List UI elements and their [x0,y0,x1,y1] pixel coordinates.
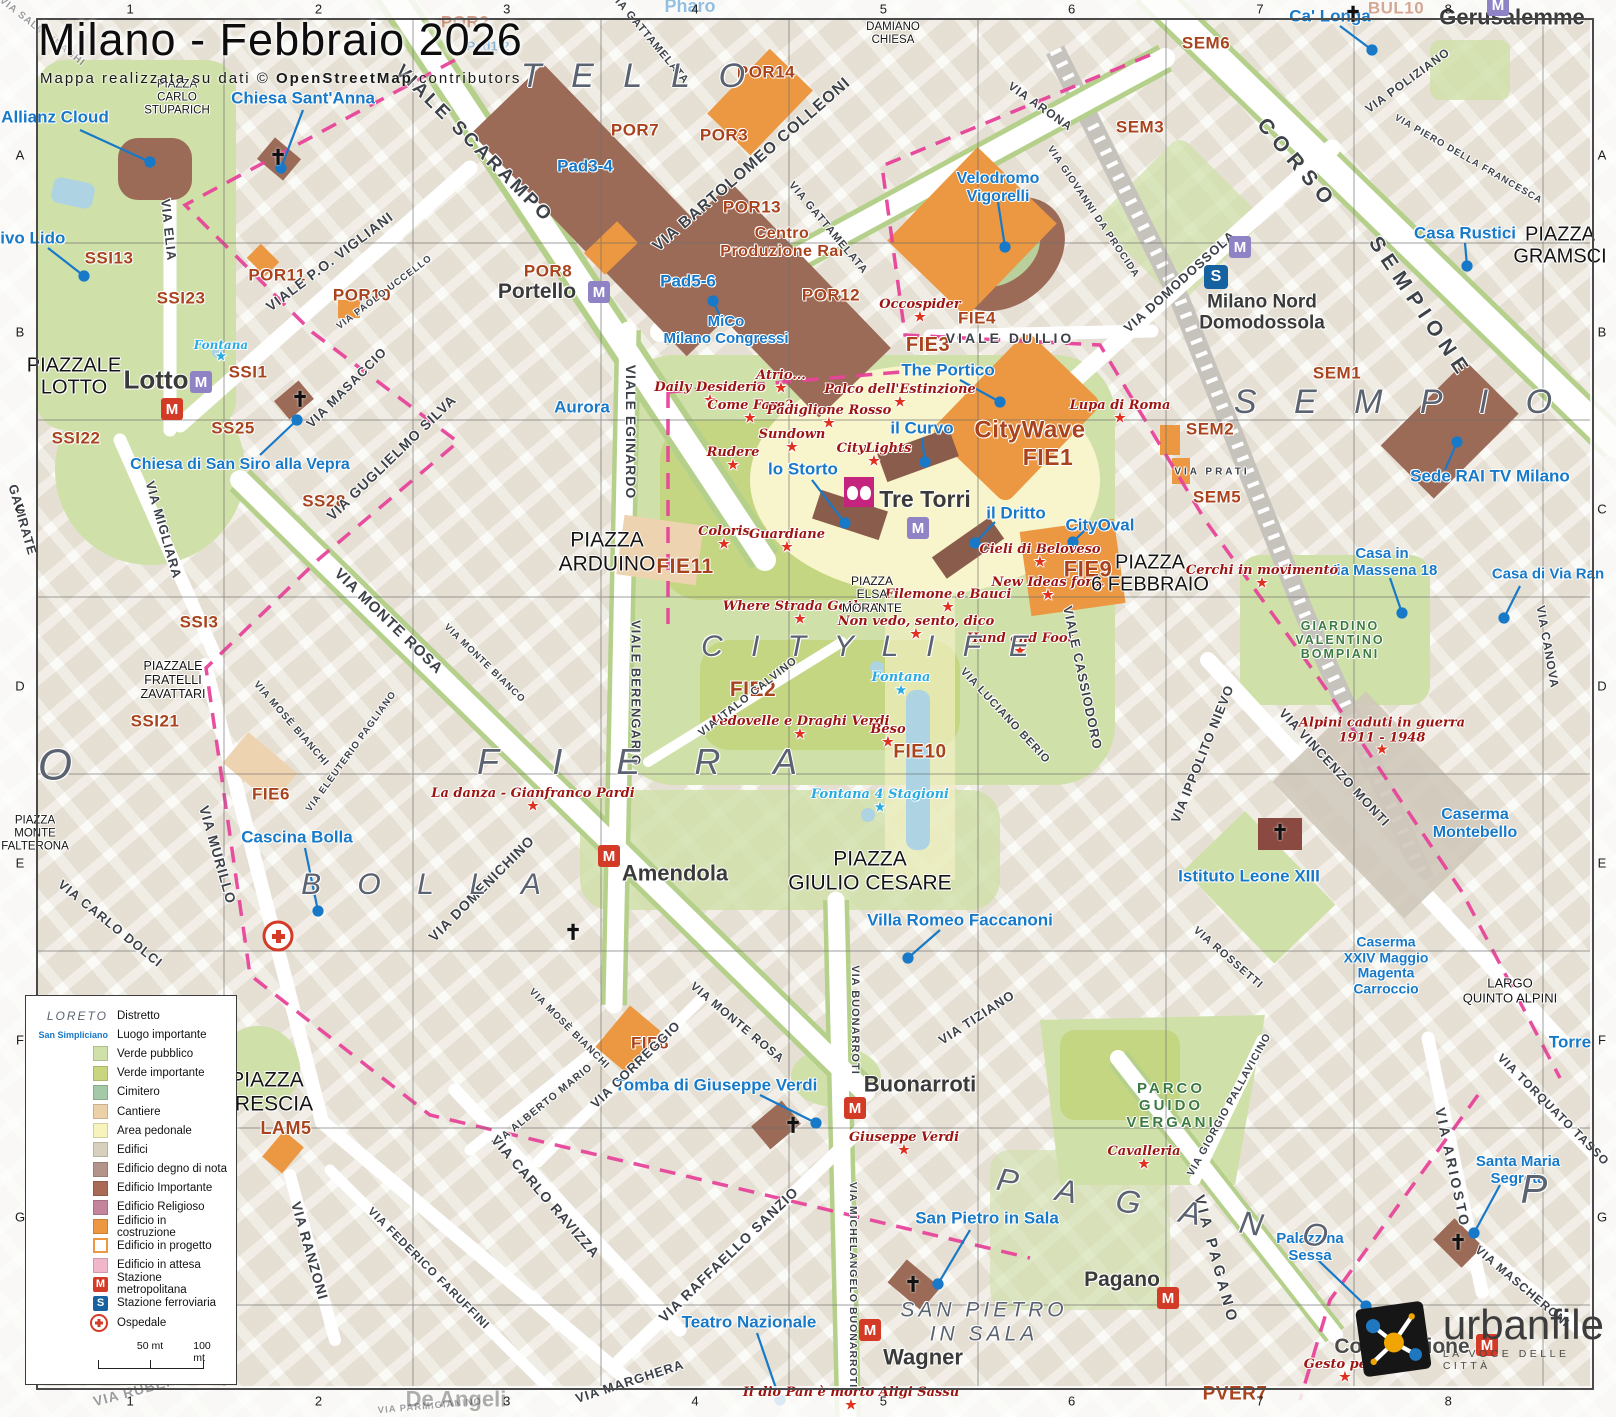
urbanfile-brand: urbanfile [1443,1306,1604,1344]
legend-key [36,1123,108,1138]
legend-swatch [93,1104,108,1119]
place-label: Chiesa di San Siro alla Vepra [130,456,350,474]
poi-label: Guardiane [749,528,825,552]
metro-station-marker: M [844,1097,866,1119]
project-code-label: FIE11 [656,555,713,579]
place-label: Caserma XXIV Maggio Magenta Carroccio [1344,935,1429,998]
poi-label: Cieli di Beloveso [979,543,1100,567]
project-code-label: FIE4 [958,308,996,327]
attribution-brand: OpenStreetMap [276,70,413,87]
project-code-label: FIE6 [252,784,290,803]
street-label: GAVIRATE [5,483,39,557]
legend-row: LORETODistretto [36,1006,228,1025]
street-label: VIALE EGINARDO [622,365,638,500]
station-label: Portello [498,280,576,304]
poi-label: Coloris [698,525,750,549]
station-label: Tre Torri [879,487,971,513]
street-label: VIA RAFFAELLO SANZIO [656,1184,802,1326]
legend-key: S [36,1296,108,1311]
legend-label: Edificio in attesa [117,1259,201,1271]
legend-swatch [93,1181,108,1196]
rail-station-icon: S [93,1296,108,1311]
church-icon: ✝ [1344,3,1362,28]
project-code-label: POR13 [723,197,781,216]
legend-swatch [93,1162,108,1177]
legend-label: Area pedonale [117,1125,192,1137]
attribution-prefix: Mappa realizzata su dati © [40,70,276,87]
metro-station-marker: M [1157,1287,1179,1309]
legend-row: Cimitero [36,1083,228,1102]
project-code-label: POR12 [802,285,860,304]
poi-label: Occospider [879,298,960,322]
place-label: Chiesa Sant'Anna [231,88,375,107]
legend-row: Area pedonale [36,1121,228,1140]
street-label: VIA CARLO RAVIZZA [488,1133,603,1262]
park-label: GIARDINO VALENTINO BOMPIANI [1295,619,1384,661]
legend-key [36,1258,108,1273]
legend-key [36,1200,108,1215]
park-label: PARCO GUIDO VERGANI [1126,1081,1215,1131]
legend-swatch [93,1238,108,1253]
station-label: Wagner [883,1346,963,1371]
legend-key [36,1219,108,1234]
legend-swatch [93,1200,108,1215]
place-label: Pharo [664,0,715,16]
station-label: Lotto [124,365,189,394]
street-label: VIA TORQUATO TASSO [1495,1052,1612,1169]
legend-label: Edificio Religioso [117,1201,205,1213]
legend-label: Stazione ferroviaria [117,1297,216,1309]
legend-key [36,1046,108,1061]
project-code-label: POR7 [611,120,659,139]
station-label: Milano Nord Domodossola [1199,292,1325,335]
scale-label-50: 50 mt [137,1340,163,1352]
scale-tick [150,1360,151,1368]
project-code-label: SEM1 [1313,363,1361,382]
place-label: Caserma Montebello [1433,806,1517,842]
poi-label: Il dio Pan è morto Aligi Sassu [743,1386,959,1410]
place-label: Teatro Nazionale [682,1312,817,1331]
district-label: F I E R A [477,742,819,782]
station-label: De Angeli [406,1388,507,1413]
legend-label: Luogo importante [117,1029,207,1041]
legend-label: Edificio Importante [117,1182,212,1194]
place-label: Casa Rustici [1414,223,1516,242]
place-label: il Curvo [890,418,953,437]
metro-m5-station-marker: M [588,281,610,303]
street-label: VIA CARLO DOLCI [55,877,165,970]
project-code-label: SSI1 [229,362,268,381]
urbanfile-logo: urbanfile LA VOCE DELLE CITTÀ [1358,1302,1616,1376]
place-label: Casa di Via Ran [1492,567,1604,584]
place-label: Casa in Via Massena 18 [1327,546,1438,580]
street-label: VIA BUONARROTI [849,965,861,1075]
metro-station-marker: M [598,845,620,867]
legend-row: Verde pubblico [36,1044,228,1063]
place-label: tivo Lido [0,228,65,247]
hospital-icon [263,921,294,952]
poi-label: Padiglione Rosso [767,404,892,428]
legend-row: Cantiere [36,1102,228,1121]
street-label: VIA GIOVANNI DA PROCIDA [1045,144,1142,280]
station-label: Buonarroti [864,1073,976,1098]
scale-bar: 50 mt 100 mt [98,1340,208,1374]
legend-label: Cantiere [117,1106,160,1118]
street-label: VIA MASACCIO [304,345,390,431]
place-label: MiCo Milano Congressi [663,314,788,348]
street-label: VIA ALBERTO MARIO [491,1062,596,1150]
fountain-label: Fontana [194,339,248,361]
project-code-label: SSI3 [180,612,219,631]
poi-label: Atrio... [756,369,806,393]
legend-swatch [93,1123,108,1138]
legend-key [36,1238,108,1253]
legend-place-sample: San Simpliciano [38,1030,108,1040]
poi-label: Lupa di Roma [1070,399,1171,423]
station-label: Gerusalemme [1439,6,1585,31]
project-code-label: SSI22 [52,428,101,447]
place-label: Villa Romeo Faccanoni [867,910,1053,929]
place-label: The Portico [901,360,995,379]
district-label: C I T Y L I F E [701,630,1039,664]
project-code-label: POR8 [524,261,572,280]
legend-label: Ospedale [117,1317,166,1329]
church-icon: ✝ [269,146,287,171]
legend-swatch [93,1258,108,1273]
poi-label: Sundown [759,428,826,452]
church-icon: ✝ [291,388,309,413]
street-label: VIA ROSSETTI [1191,924,1265,991]
fountain-label: Fontana 4 Stagioni [811,788,949,812]
legend-swatch [93,1219,108,1234]
project-code-label: SEM5 [1193,487,1241,506]
rail-station-marker: S [1204,265,1228,289]
project-code-label: SEM6 [1182,33,1230,52]
project-code-label: SEM2 [1186,419,1234,438]
legend-row: MStazione metropolitana [36,1275,228,1294]
district-label: O [38,740,72,789]
project-code-label: FIE3 [906,334,950,356]
poi-label: Cavalleria [1107,1145,1180,1169]
legend-label: Edifici [117,1144,148,1156]
district-label: P [1521,1168,1548,1213]
church-icon: ✝ [1271,821,1289,846]
map-attribution: Mappa realizzata su dati © OpenStreetMap… [40,70,523,87]
street-label: VIA LUCIANO BERIO [958,666,1053,767]
street-label: VIA ELIA [158,198,179,262]
legend-swatch [93,1046,108,1061]
square-label: PIAZZA GRAMSCI [1513,224,1606,269]
legend-key [36,1162,108,1177]
legend-label: Cimitero [117,1086,160,1098]
attribution-suffix: contributors [413,70,522,87]
metro-m5-station-marker: M [907,517,929,539]
map-labels: Allianz CloudChiesa Sant'Annativo LidoPa… [0,0,1616,1417]
church-icon: ✝ [904,1273,922,1298]
square-label: PIAZZA ARDUINO [559,528,656,575]
legend-row: Edificio degno di nota [36,1160,228,1179]
church-icon: ✝ [784,1114,802,1139]
poi-label: Giuseppe Verdi [849,1131,959,1155]
metro-m5-station-marker: M [1487,0,1509,16]
street-label: SEMPIONE [1364,232,1477,383]
metro-station-marker: M [161,398,183,420]
place-label: Velodromo Vigorelli [957,170,1040,206]
metro-m5-station-marker: M [190,371,212,393]
street-label: VIA IPPOLITO NIEVO [1169,683,1238,825]
church-icon: ✝ [1449,1231,1467,1256]
theater-icon [844,477,874,507]
street-label: VIA POLIZIANO [1363,46,1453,116]
legend-key: M [36,1277,108,1292]
legend-key [36,1104,108,1119]
place-label: lo Storto [768,459,838,478]
legend-label: Verde importante [117,1067,205,1079]
legend-label: Stazione metropolitana [117,1272,228,1296]
title-block: Milano - Febbraio 2026 Mappa realizzata … [38,14,523,87]
metro-m5-station-marker: M [1229,236,1251,258]
place-label: CityOval [1066,515,1135,534]
street-label: VIA RANZONI [287,1200,330,1302]
street-label: VIA TIZIANO [936,988,1018,1048]
legend-swatch [93,1085,108,1100]
project-code-label: SEM3 [1116,117,1164,136]
legend-swatch [93,1066,108,1081]
street-label: VIA MONTE BIANCO [441,622,526,705]
legend-label: Edificio degno di nota [117,1163,227,1175]
street-label: VIA MICHELANGELO BUONARROTI [846,1182,858,1388]
legend-row: Edificio in costruzione [36,1217,228,1236]
place-label: Pad5-6 [660,271,716,290]
fountain-label: Fontana [872,671,931,695]
legend-label: Edificio in costruzione [117,1215,228,1239]
poi-label: Rudere [707,446,760,470]
square-label: DAMIANO CHIESA [866,21,920,47]
scale-line [98,1360,204,1369]
street-label: VIALE DUILIO [946,331,1075,347]
place-label: Torre [1549,1032,1591,1051]
urbanfile-logo-icon [1353,1297,1433,1380]
street-label: VIA ARIOSTO [1432,1106,1473,1229]
district-label: T E L L O [521,57,755,95]
legend-row: Edificio in progetto [36,1236,228,1255]
project-code-label: PVER7 [1203,1383,1268,1404]
place-label: Istituto Leone XIII [1178,866,1320,885]
legend-row: San SimplicianoLuogo importante [36,1025,228,1044]
square-label: PIAZZA ELSA MORANTE [842,575,902,615]
square-label: LARGO QUINTO ALPINI [1463,976,1557,1005]
station-label: Amendola [622,862,728,887]
project-code-label: LAM5 [261,1118,312,1138]
place-label: Tomba di Giuseppe Verdi [615,1075,818,1094]
place-label: Aurora [554,397,610,416]
legend-key [36,1085,108,1100]
poi-label: Vedovelle e Draghi Verdi [711,715,890,739]
street-label: VIALE CASSIODORO [1060,605,1105,752]
street-label: VIA CANOVA [1533,604,1561,689]
map-canvas: Allianz CloudChiesa Sant'Annativo LidoPa… [0,0,1616,1417]
project-code-label: SSI21 [131,711,180,730]
place-label: San Pietro in Sala [915,1208,1059,1227]
project-code-label: SS25 [211,418,255,437]
place-label: Sede RAI TV Milano [1410,466,1570,485]
legend-key [36,1066,108,1081]
district-label: SAN PIETRO IN SALA [900,1298,1067,1345]
legend-key [36,1181,108,1196]
project-code-label: SSI13 [85,248,134,267]
legend-items: LORETODistrettoSan SimplicianoLuogo impo… [36,1006,228,1332]
street-label: VIA MARGHERA [574,1358,686,1407]
street-label: VIA MONTE ROSA [687,980,786,1066]
metro-station-icon: M [93,1277,108,1292]
legend-label: Verde pubblico [117,1048,193,1060]
hospital-icon [90,1314,108,1332]
station-label: Pagano [1084,1268,1160,1292]
map-title: Milano - Febbraio 2026 [38,14,523,66]
street-label: VIA FEDERICO FARUFFINI [365,1206,492,1333]
project-code-label: FIE1 [1023,445,1074,471]
street-label: VIA MIGLIARA [142,479,184,580]
map-legend: LORETODistrettoSan SimplicianoLuogo impo… [25,995,237,1385]
legend-key [36,1314,108,1332]
urbanfile-tagline: LA VOCE DELLE CITTÀ [1443,1348,1616,1372]
legend-label: Distretto [117,1010,160,1022]
place-label: il Dritto [986,503,1046,522]
poi-label: CityLights [837,442,912,466]
street-label: CORSO [1252,114,1342,215]
square-label: PIAZZALE LOTTO [27,355,121,400]
street-label: VIA MONTE ROSA [330,566,445,678]
legend-key: San Simpliciano [36,1030,108,1040]
square-label: PIAZZA 6 FEBBRAIO [1091,552,1209,597]
poi-label: La danza - Gianfranco Pardi [431,787,634,811]
square-label: PIAZZA MONTE FALTERONA [1,815,69,854]
project-code-label: BUL10 [1368,0,1424,18]
project-code-label: SSI23 [157,288,206,307]
legend-row: Ospedale [36,1313,228,1332]
legend-label: Edificio in progetto [117,1240,212,1252]
street-label: VIA PIERO DELLA FRANCESCA [1392,113,1544,207]
legend-row: Edifici [36,1140,228,1159]
street-label: VIA MOSÈ BIANCHI [527,987,612,1072]
legend-swatch [93,1142,108,1157]
legend-key [36,1142,108,1157]
poi-label: Beso [870,723,905,747]
street-label: VIA ARONA [1005,80,1075,134]
poi-label: Filemone e Bauci [885,588,1012,612]
church-icon: ✝ [564,921,582,946]
street-label: VIA PRATI [1174,466,1249,477]
street-label: VIA MOSÈ BIANCHI [251,679,331,769]
legend-row: Verde importante [36,1064,228,1083]
street-label: VIA MURILLO [195,804,238,906]
district-label: B O L L A [301,868,555,902]
square-label: PIAZZA GIULIO CESARE [788,847,951,894]
legend-key: LORETO [36,1009,108,1023]
place-label: Allianz Cloud [1,107,109,126]
place-label: Pad3-4 [557,156,613,175]
place-label: Cascina Bolla [241,827,353,846]
project-code-label: POR3 [700,125,748,144]
metro-station-marker: M [859,1319,881,1341]
square-label: PIAZZALE FRATELLI ZAVATTARI [140,659,205,701]
legend-row: SStazione ferroviaria [36,1294,228,1313]
legend-row: Edificio Importante [36,1179,228,1198]
district-label: S E M P I O [1234,383,1566,421]
legend-district-sample: LORETO [47,1009,108,1023]
